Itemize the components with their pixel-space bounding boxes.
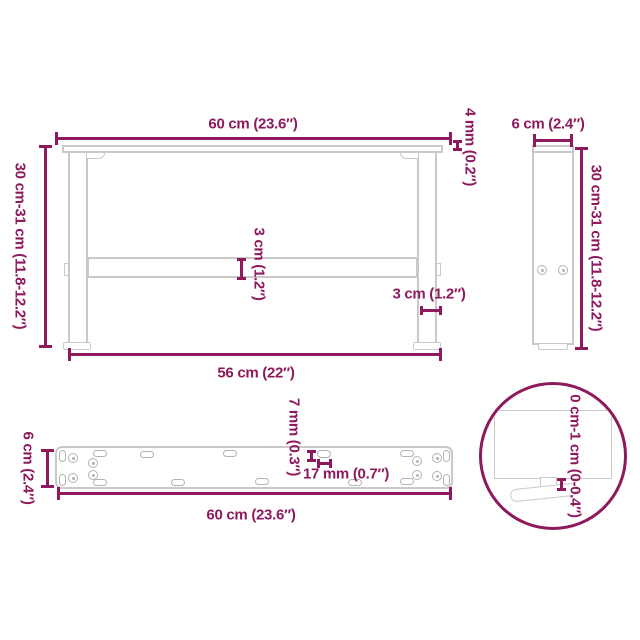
dim-line-plate-depth bbox=[46, 449, 49, 488]
dim-label-front-height: 30 cm-31 cm (11.8-12.2″) bbox=[12, 163, 29, 330]
plate-slot-horizontal bbox=[317, 450, 331, 458]
plate-slot-horizontal bbox=[400, 450, 414, 457]
dim-label-plate-thickness: 4 mm (0.2″) bbox=[462, 108, 479, 186]
dim-label-leg-width: 3 cm (1.2″) bbox=[392, 286, 465, 303]
dim-marker-plate-thickness bbox=[456, 140, 459, 151]
front-top-plate bbox=[62, 145, 443, 153]
plate-slot-vertical bbox=[443, 474, 450, 486]
dim-line-side-height bbox=[580, 147, 583, 350]
plate-screw-hole bbox=[432, 453, 442, 463]
plate-slot-vertical bbox=[443, 450, 450, 462]
front-right-foot bbox=[413, 342, 441, 350]
dim-label-foot-adjustment: 0 cm-1 cm (0-0.4″) bbox=[567, 394, 584, 518]
detail-leg-outline bbox=[494, 410, 612, 479]
plate-slot-horizontal bbox=[171, 479, 185, 486]
plate-slot-horizontal bbox=[400, 478, 414, 485]
side-screw-hole-right bbox=[558, 265, 568, 275]
foot-detail-circle: 0 cm-1 cm (0-0.4″) bbox=[479, 382, 627, 530]
dim-line-top-width bbox=[55, 137, 452, 140]
mounting-plate bbox=[55, 446, 453, 489]
dim-label-slot-height: 7 mm (0.3″) bbox=[286, 398, 303, 476]
dim-line-front-height bbox=[44, 145, 47, 348]
dim-label-side-depth: 6 cm (2.4″) bbox=[511, 116, 584, 133]
side-plate-edge-line bbox=[534, 151, 572, 153]
dim-line-plate-length bbox=[57, 492, 452, 495]
dim-marker-crossbar bbox=[240, 258, 243, 280]
plate-screw-hole bbox=[88, 458, 98, 468]
plate-slot-horizontal bbox=[255, 478, 269, 485]
plate-slot-horizontal bbox=[223, 450, 237, 457]
plate-screw-hole bbox=[68, 473, 78, 483]
dim-label-front-bottom-width: 56 cm (22″) bbox=[217, 365, 294, 382]
dim-line-bottom-width bbox=[68, 353, 442, 356]
dim-label-plate-depth: 6 cm (2.4″) bbox=[20, 431, 37, 504]
plate-slot-horizontal bbox=[140, 451, 154, 458]
side-leg bbox=[532, 145, 574, 345]
dim-line-side-depth bbox=[533, 139, 573, 142]
dim-label-slot-length: 17 mm (0.7″) bbox=[303, 466, 389, 483]
plate-screw-hole bbox=[412, 456, 422, 466]
front-left-leg bbox=[68, 150, 88, 344]
plate-slot-horizontal bbox=[93, 450, 107, 457]
side-screw-hole-left bbox=[537, 265, 547, 275]
dim-marker-foot-adjustment bbox=[560, 478, 563, 491]
plate-screw-hole bbox=[68, 453, 78, 463]
side-foot bbox=[538, 343, 568, 350]
dim-label-front-top-width: 60 cm (23.6″) bbox=[208, 116, 297, 133]
product-dimension-diagram: 60 cm (23.6″) 4 mm (0.2″) 30 cm-31 cm (1… bbox=[0, 0, 640, 640]
dim-label-plate-length: 60 cm (23.6″) bbox=[206, 507, 295, 524]
dim-label-side-height: 30 cm-31 cm (11.8-12.2″) bbox=[588, 165, 605, 332]
plate-slot-vertical bbox=[59, 474, 66, 486]
plate-screw-hole bbox=[432, 471, 442, 481]
plate-slot-horizontal bbox=[93, 479, 107, 486]
dim-marker-slot-height bbox=[310, 450, 313, 462]
plate-slot-vertical bbox=[59, 450, 66, 462]
plate-screw-hole bbox=[412, 470, 422, 480]
dim-label-crossbar: 3 cm (1.2″) bbox=[251, 227, 268, 300]
dim-marker-leg-width bbox=[420, 309, 442, 312]
